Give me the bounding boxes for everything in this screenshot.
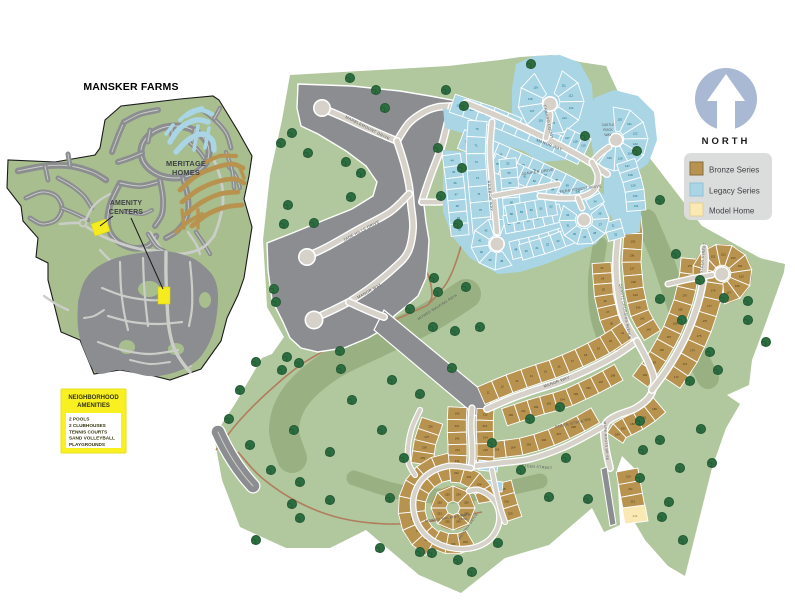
- svg-text:2 POOLS: 2 POOLS: [69, 417, 89, 422]
- svg-text:124: 124: [627, 152, 632, 156]
- svg-text:45: 45: [452, 170, 456, 174]
- svg-text:215: 215: [483, 448, 488, 452]
- svg-text:240: 240: [455, 411, 460, 415]
- svg-text:174: 174: [690, 348, 695, 352]
- svg-text:166: 166: [659, 348, 664, 352]
- svg-text:MANSKER FARMS: MANSKER FARMS: [83, 81, 178, 93]
- svg-text:233: 233: [466, 475, 471, 479]
- svg-text:82: 82: [533, 179, 537, 183]
- svg-text:129: 129: [631, 183, 636, 187]
- svg-text:AMENITY: AMENITY: [110, 200, 142, 207]
- svg-text:213: 213: [482, 424, 487, 428]
- svg-text:78: 78: [496, 162, 500, 166]
- svg-text:116: 116: [538, 118, 543, 122]
- svg-text:183: 183: [621, 427, 626, 431]
- svg-text:13: 13: [515, 379, 519, 383]
- svg-text:18: 18: [584, 353, 588, 357]
- svg-text:118: 118: [528, 97, 533, 101]
- svg-text:195: 195: [573, 392, 578, 396]
- svg-text:NORTH: NORTH: [702, 136, 751, 147]
- svg-text:20: 20: [525, 249, 529, 253]
- svg-text:WAY: WAY: [604, 133, 612, 137]
- svg-text:TENNIS COURTS: TENNIS COURTS: [69, 429, 107, 434]
- svg-text:157: 157: [726, 290, 731, 294]
- svg-text:244: 244: [455, 459, 460, 463]
- svg-text:194: 194: [560, 397, 565, 401]
- svg-text:155: 155: [739, 275, 744, 279]
- svg-text:210: 210: [626, 474, 631, 478]
- svg-text:122: 122: [633, 131, 638, 135]
- svg-text:12: 12: [501, 385, 505, 389]
- svg-text:40: 40: [480, 250, 484, 254]
- svg-text:48: 48: [456, 204, 460, 208]
- svg-text:172: 172: [688, 264, 693, 268]
- svg-text:139: 139: [633, 293, 638, 297]
- svg-text:237: 237: [424, 435, 429, 439]
- svg-text:130: 130: [633, 194, 638, 198]
- svg-text:212: 212: [483, 413, 488, 417]
- svg-text:243: 243: [455, 448, 460, 452]
- svg-text:138: 138: [631, 280, 636, 284]
- svg-text:141: 141: [640, 317, 645, 321]
- svg-text:136: 136: [630, 254, 635, 258]
- svg-text:71: 71: [475, 143, 479, 147]
- svg-text:214: 214: [483, 436, 488, 440]
- svg-text:182: 182: [630, 422, 635, 426]
- svg-text:HOMES: HOMES: [172, 168, 200, 177]
- svg-text:204: 204: [511, 446, 516, 450]
- svg-text:112: 112: [569, 93, 574, 97]
- svg-text:22: 22: [546, 243, 550, 247]
- svg-text:38: 38: [500, 259, 504, 263]
- svg-text:72: 72: [475, 160, 479, 164]
- svg-text:175: 175: [697, 334, 702, 338]
- svg-text:119: 119: [581, 143, 586, 147]
- svg-text:184: 184: [615, 432, 620, 436]
- svg-text:21: 21: [621, 331, 625, 335]
- svg-text:20: 20: [609, 339, 613, 343]
- svg-text:203: 203: [494, 448, 499, 452]
- svg-text:135: 135: [630, 239, 635, 243]
- svg-text:173: 173: [682, 362, 687, 366]
- svg-text:Bronze Series: Bronze Series: [709, 166, 759, 175]
- svg-text:28: 28: [593, 231, 597, 235]
- svg-text:AMENITIES: AMENITIES: [77, 403, 110, 409]
- svg-text:26: 26: [598, 212, 602, 216]
- svg-text:234: 234: [477, 483, 482, 487]
- svg-text:61: 61: [540, 206, 544, 210]
- svg-text:120: 120: [617, 117, 622, 121]
- svg-text:23: 23: [600, 266, 604, 270]
- svg-text:54: 54: [508, 181, 512, 185]
- svg-text:236: 236: [428, 424, 433, 428]
- svg-text:153: 153: [731, 256, 736, 260]
- svg-text:151: 151: [711, 255, 716, 259]
- svg-text:113: 113: [569, 106, 574, 110]
- svg-text:47: 47: [455, 192, 459, 196]
- svg-text:59: 59: [520, 210, 524, 214]
- svg-text:53: 53: [507, 171, 511, 175]
- svg-text:238: 238: [422, 445, 427, 449]
- svg-text:211: 211: [628, 487, 633, 491]
- svg-text:16: 16: [557, 365, 561, 369]
- svg-text:39: 39: [488, 258, 492, 262]
- svg-text:178: 178: [711, 289, 716, 293]
- svg-text:177: 177: [707, 304, 712, 308]
- svg-text:192: 192: [534, 405, 539, 409]
- svg-text:CENTERS: CENTERS: [109, 209, 143, 216]
- svg-text:2 CLUBHOUSES: 2 CLUBHOUSES: [69, 423, 106, 428]
- svg-text:PLAYGROUNDS: PLAYGROUNDS: [69, 442, 105, 447]
- svg-text:156: 156: [735, 284, 740, 288]
- svg-text:NEIGHBORHOOD: NEIGHBORHOOD: [68, 395, 119, 401]
- svg-text:25: 25: [602, 288, 606, 292]
- svg-text:121: 121: [627, 122, 632, 126]
- svg-text:219: 219: [504, 499, 509, 503]
- svg-text:CASTLE: CASTLE: [602, 123, 616, 127]
- svg-text:131: 131: [634, 204, 639, 208]
- svg-text:164: 164: [643, 373, 648, 377]
- svg-text:206: 206: [542, 438, 547, 442]
- svg-text:213: 213: [633, 514, 638, 518]
- svg-text:172: 172: [674, 375, 679, 379]
- svg-text:28: 28: [610, 321, 614, 325]
- svg-text:191: 191: [521, 409, 526, 413]
- svg-text:255: 255: [464, 501, 469, 505]
- svg-text:23: 23: [556, 239, 560, 243]
- svg-text:27: 27: [606, 310, 610, 314]
- svg-text:111: 111: [562, 83, 567, 87]
- svg-text:190: 190: [508, 413, 513, 417]
- svg-text:58: 58: [510, 212, 514, 216]
- svg-text:241: 241: [454, 424, 459, 428]
- svg-text:Model Home: Model Home: [709, 207, 755, 216]
- svg-text:Legacy Series: Legacy Series: [709, 187, 760, 196]
- svg-text:32: 32: [614, 233, 618, 237]
- svg-text:154: 154: [737, 264, 742, 268]
- svg-text:167: 167: [667, 335, 672, 339]
- svg-text:34: 34: [593, 199, 597, 203]
- svg-text:74: 74: [477, 192, 481, 196]
- svg-text:176: 176: [702, 319, 707, 323]
- svg-text:31: 31: [566, 224, 570, 228]
- svg-text:73: 73: [476, 176, 480, 180]
- svg-text:14: 14: [530, 374, 534, 378]
- svg-text:MERITAGE: MERITAGE: [166, 159, 206, 168]
- svg-text:31: 31: [612, 224, 616, 228]
- svg-text:21: 21: [535, 246, 539, 250]
- svg-text:140: 140: [636, 305, 641, 309]
- svg-text:29: 29: [583, 235, 587, 239]
- svg-text:212: 212: [630, 500, 635, 504]
- svg-text:119: 119: [533, 86, 538, 90]
- svg-text:125: 125: [618, 157, 623, 161]
- svg-text:44: 44: [451, 159, 455, 163]
- svg-text:15: 15: [544, 369, 548, 373]
- svg-text:70: 70: [475, 127, 479, 131]
- svg-text:117: 117: [565, 136, 570, 140]
- svg-text:46: 46: [453, 181, 457, 185]
- svg-text:127: 127: [625, 164, 630, 168]
- svg-text:27: 27: [599, 222, 603, 226]
- svg-text:123: 123: [633, 142, 638, 146]
- svg-text:48: 48: [514, 248, 518, 252]
- svg-text:30: 30: [573, 232, 577, 236]
- svg-text:11: 11: [487, 391, 490, 395]
- svg-text:168: 168: [673, 321, 678, 325]
- svg-text:198: 198: [610, 374, 615, 378]
- svg-text:19: 19: [597, 346, 601, 350]
- svg-text:137: 137: [630, 267, 635, 271]
- svg-text:75: 75: [479, 208, 483, 212]
- svg-text:32: 32: [566, 213, 570, 217]
- svg-text:62: 62: [550, 205, 554, 209]
- svg-text:117: 117: [530, 109, 535, 113]
- svg-text:128: 128: [628, 173, 633, 177]
- svg-text:252: 252: [437, 501, 442, 505]
- svg-text:251: 251: [437, 512, 442, 516]
- svg-text:118: 118: [573, 140, 578, 144]
- svg-text:193: 193: [546, 402, 551, 406]
- svg-text:232: 232: [454, 471, 459, 475]
- svg-text:205: 205: [526, 443, 531, 447]
- svg-text:152: 152: [721, 253, 726, 257]
- svg-text:196: 196: [586, 386, 591, 390]
- svg-text:17: 17: [571, 359, 575, 363]
- svg-text:239: 239: [420, 456, 425, 460]
- svg-text:26: 26: [604, 299, 608, 303]
- svg-text:180: 180: [652, 407, 657, 411]
- svg-text:170: 170: [682, 293, 687, 297]
- svg-text:253: 253: [445, 493, 450, 497]
- svg-text:142: 142: [646, 328, 651, 332]
- svg-text:42: 42: [484, 228, 488, 232]
- svg-text:254: 254: [456, 493, 461, 497]
- svg-text:41: 41: [478, 238, 482, 242]
- svg-text:242: 242: [455, 436, 460, 440]
- svg-text:197: 197: [598, 380, 603, 384]
- svg-text:99: 99: [566, 184, 570, 188]
- svg-text:229: 229: [463, 540, 468, 544]
- svg-text:126: 126: [607, 156, 612, 160]
- svg-text:114: 114: [562, 116, 567, 120]
- svg-text:ROCK: ROCK: [603, 128, 613, 132]
- svg-text:220: 220: [508, 512, 513, 516]
- svg-text:24: 24: [601, 277, 605, 281]
- svg-text:SAND VOLLEYBALL: SAND VOLLEYBALL: [69, 436, 115, 441]
- svg-text:60: 60: [530, 208, 534, 212]
- svg-text:169: 169: [678, 307, 683, 311]
- svg-text:207: 207: [556, 432, 561, 436]
- svg-text:52: 52: [506, 162, 510, 166]
